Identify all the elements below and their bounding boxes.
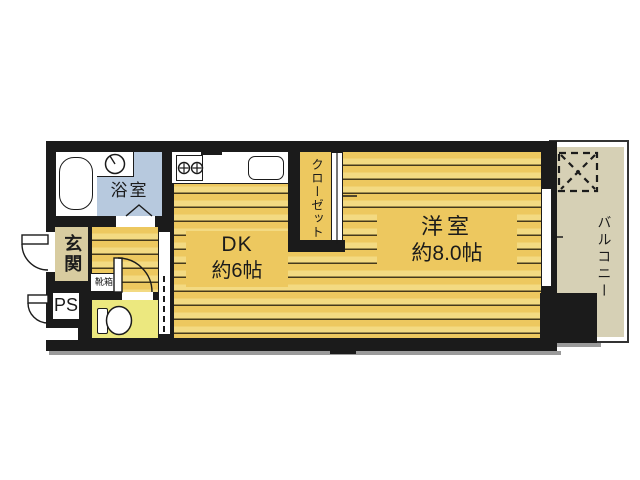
- toilet-door-swing-icon: [118, 258, 152, 292]
- entrance-door-leaf: [22, 235, 48, 244]
- entrance-door-swing-icon: [22, 244, 48, 270]
- toilet-icon-bowl: [107, 307, 132, 335]
- ps-door-swing-icon: [28, 303, 48, 323]
- folding-door-icon: [126, 205, 152, 216]
- washer-place-x2: [561, 155, 595, 189]
- ps-door-leaf: [28, 295, 48, 303]
- toilet-door-leaf: [114, 258, 122, 292]
- floor-plan: 浴室 玄関 靴箱 PS クローゼット DK 約6帖 洋室 約8.0帖: [0, 0, 640, 480]
- lineart-overlay: [0, 0, 640, 480]
